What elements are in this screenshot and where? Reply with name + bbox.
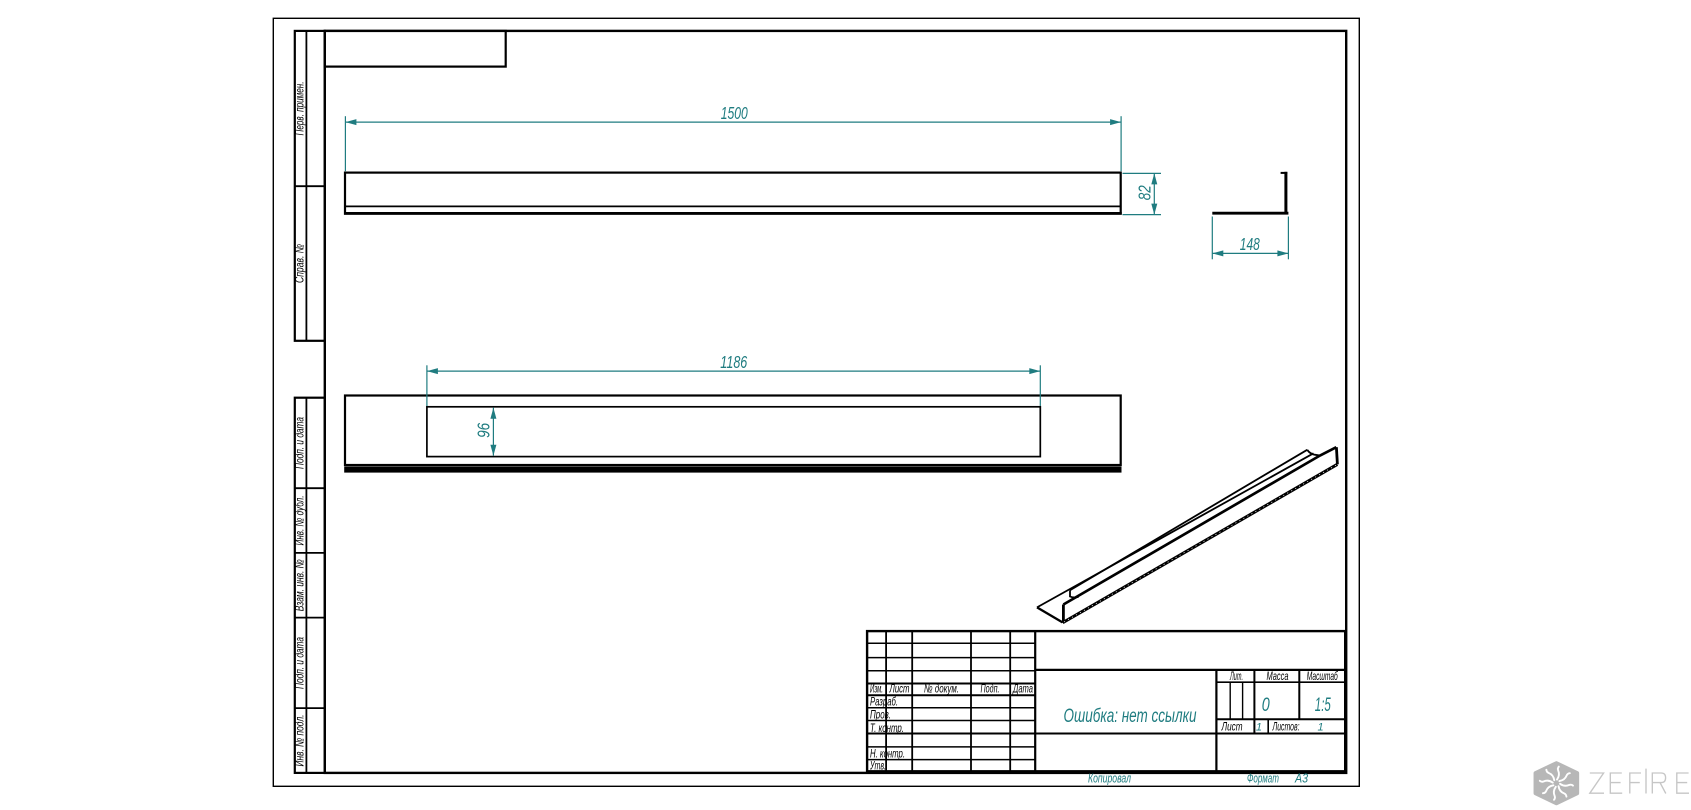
svg-text:Подп.: Подп.	[981, 682, 1000, 696]
svg-text:1: 1	[1256, 722, 1262, 734]
svg-text:Утв.: Утв.	[869, 759, 886, 773]
svg-text:Лист: Лист	[889, 682, 910, 696]
svg-text:Масса: Масса	[1267, 669, 1289, 683]
svg-text:1500: 1500	[721, 103, 748, 123]
svg-text:А3: А3	[1294, 771, 1308, 786]
svg-text:82: 82	[1135, 185, 1155, 200]
svg-text:1186: 1186	[720, 352, 747, 372]
svg-text:Формат: Формат	[1247, 771, 1279, 786]
svg-text:Перв. примен.: Перв. примен.	[293, 82, 307, 136]
svg-text:Лит.: Лит.	[1230, 669, 1243, 683]
svg-text:Ошибка: нет ссылки: Ошибка: нет ссылки	[1064, 706, 1197, 727]
svg-text:Т. контр.: Т. контр.	[870, 721, 904, 735]
svg-text:148: 148	[1240, 234, 1260, 254]
svg-text:Изм.: Изм.	[870, 682, 883, 696]
svg-text:Взам. инв. №: Взам. инв. №	[293, 559, 307, 611]
svg-text:Лист: Лист	[1221, 720, 1243, 734]
svg-text:Масштаб: Масштаб	[1307, 669, 1339, 683]
svg-text:Копировал: Копировал	[1088, 771, 1131, 786]
svg-text:96: 96	[473, 423, 493, 438]
svg-text:Подп. и дата: Подп. и дата	[293, 417, 307, 469]
svg-text:Дата: Дата	[1012, 682, 1033, 696]
svg-text:Подп. и дата: Подп. и дата	[293, 637, 307, 689]
svg-text:Разраб.: Разраб.	[870, 695, 898, 709]
svg-text:Листов:: Листов:	[1272, 720, 1300, 734]
svg-text:1:5: 1:5	[1315, 695, 1331, 716]
svg-text:Инв. № подл.: Инв. № подл.	[293, 715, 307, 767]
svg-text:Инв. № дубл.: Инв. № дубл.	[293, 496, 307, 546]
svg-text:1: 1	[1318, 722, 1324, 734]
svg-text:Справ. №: Справ. №	[293, 244, 307, 283]
svg-text:0: 0	[1262, 695, 1270, 716]
svg-text:№ докум.: № докум.	[924, 682, 959, 696]
svg-text:Пров.: Пров.	[870, 708, 891, 722]
